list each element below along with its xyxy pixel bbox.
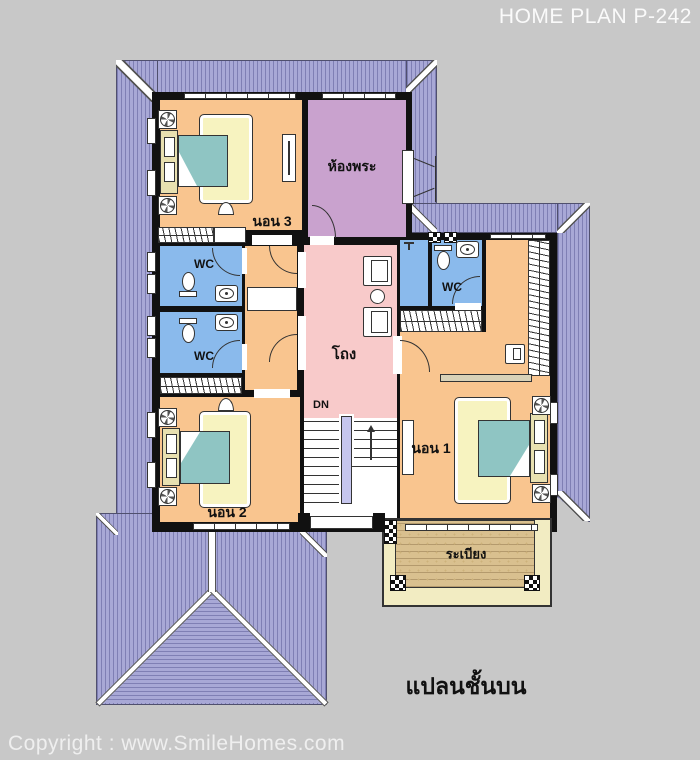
label-wc-upper: WC: [194, 257, 214, 271]
closet-wc-block: [160, 377, 242, 394]
window-left-wc-lower-a: [147, 316, 156, 336]
ceiling-fan-icon-b3-a: [158, 110, 177, 129]
sink-icon-wc-lower: [215, 314, 238, 331]
window-left-wc-upper-a: [147, 252, 156, 272]
stair-bottom-post-left: [298, 513, 310, 532]
label-bedroom3: นอน 3: [252, 211, 291, 233]
nightstand-bedroom1-a: [534, 420, 545, 444]
plan-caption: แปลนชั้นบน: [406, 669, 527, 705]
ceiling-fan-icon-b3-b: [158, 196, 177, 215]
stair-arrow-line: [370, 430, 372, 460]
label-hall: โถง: [332, 342, 356, 366]
balcony-post-bottom-left: [390, 575, 406, 591]
toilet-tank-wc-upper: [179, 291, 197, 297]
balcony-post-bottom-right: [524, 575, 540, 591]
window-right-bedroom1-b: [550, 474, 558, 496]
nightstand-bedroom3-b: [164, 162, 175, 182]
label-prayer-room: ห้องพระ: [328, 156, 377, 178]
stair-landing-line: [352, 466, 397, 467]
window-bottom-bedroom2: [193, 523, 290, 530]
ceiling-fan-icon-b2-b: [158, 487, 177, 506]
vent-wc-master-b: [444, 232, 457, 243]
roof-ridge-bottommass-right: [300, 530, 327, 557]
walkin-closet-bedroom1: [528, 240, 550, 376]
floorplan-page: { "header": { "title": "HOME PLAN P-242"…: [0, 0, 700, 760]
label-stairs-dn: DN: [313, 399, 329, 411]
sink-icon-wc-master: [456, 241, 479, 258]
window-top-bedroom3: [184, 93, 296, 99]
nightstand-bedroom1-b: [534, 450, 545, 474]
label-bedroom1: นอน 1: [411, 438, 450, 460]
linen-closet-corridor: [247, 287, 297, 311]
ceiling-fan-icon-b1-a: [532, 396, 551, 415]
toilet-icon-wc-upper: [182, 272, 195, 291]
window-left-bedroom2-a: [147, 412, 156, 438]
nightstand-bedroom2-a: [166, 434, 177, 454]
roof-right-strip: [557, 203, 590, 522]
nightstand-bedroom2-b: [166, 458, 177, 478]
stair-treads-left: [304, 421, 341, 507]
door-gap-wc-upper: [242, 248, 247, 274]
toilet-icon-wc-master: [437, 251, 450, 270]
shower-head-stem: [408, 244, 410, 250]
stair-arrow-head: [367, 425, 375, 432]
chair-bedroom1: [505, 344, 525, 364]
ceiling-fan-icon-b2-a: [158, 408, 177, 427]
closet-wc-master: [400, 310, 482, 332]
armchair-hall-top: [363, 256, 392, 286]
stair-bottom-opening: [310, 516, 373, 529]
roof-ridge-bottommass-left: [96, 513, 118, 535]
roof-ridge-topright: [406, 60, 437, 93]
shelf-bedroom3: [214, 227, 246, 243]
room-bedroom1-upper-floor: [486, 240, 528, 332]
window-left-bedroom3-a: [147, 118, 156, 144]
window-left-bedroom2-b: [147, 462, 156, 488]
door-gap-wc-lower: [242, 344, 247, 370]
door-gap-hall-upper: [298, 252, 306, 288]
window-prayer-right: [402, 150, 414, 204]
wardrobe-slot: [288, 141, 290, 175]
window-left-wc-lower-b: [147, 338, 156, 358]
stair-bottom-post-right: [373, 513, 385, 532]
page-title: HOME PLAN P-242: [499, 5, 692, 29]
door-gap-hall-lower: [298, 316, 306, 370]
vent-wc-master-a: [428, 232, 441, 243]
closet-bedroom3: [158, 227, 214, 243]
roof-bottom-mass: [96, 513, 327, 705]
roof-ridge-farright: [557, 203, 590, 233]
roof-ridge-right-cut: [557, 491, 590, 521]
wardrobe-bedroom3: [282, 134, 296, 182]
room-wc-master-shower: [400, 240, 428, 306]
ceiling-fan-icon-b1-b: [532, 484, 551, 503]
window-left-bedroom3-b: [147, 170, 156, 196]
nightstand-bedroom3-a: [164, 137, 175, 157]
stair-divider: [341, 416, 352, 504]
copyright-text: Copyright : www.SmileHomes.com: [8, 732, 345, 756]
dresser-counter-bedroom1: [440, 374, 532, 382]
toilet-icon-wc-lower: [182, 324, 195, 343]
side-table-hall: [370, 289, 385, 304]
window-bottom-bedroom1: [405, 524, 538, 531]
label-wc-lower: WC: [194, 349, 214, 363]
window-left-wc-upper-b: [147, 274, 156, 294]
shutter-frame-line: [435, 156, 436, 202]
label-wc-master: WC: [442, 280, 462, 294]
window-top-prayer: [322, 93, 396, 99]
window-top-rightwing: [490, 234, 546, 239]
balcony-post-top-left: [384, 520, 397, 544]
door-gap-corridor-bedroom2: [254, 389, 290, 398]
door-gap-corridor-bedroom3: [252, 235, 292, 245]
sink-icon-wc-upper: [215, 285, 238, 302]
label-bedroom2: นอน 2: [207, 502, 246, 524]
label-balcony: ระเบียง: [446, 544, 487, 565]
window-right-bedroom1-a: [550, 402, 558, 424]
armchair-hall-bottom: [363, 307, 392, 337]
